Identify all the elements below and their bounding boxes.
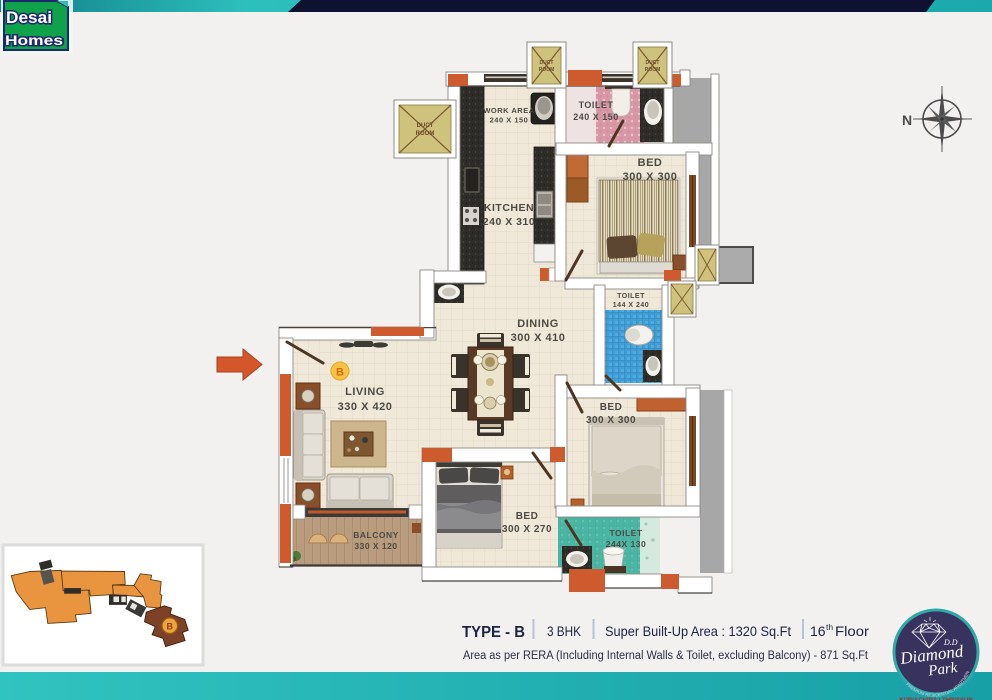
svg-text:Area as per RERA (Including In: Area as per RERA (Including Internal Wal… (463, 650, 869, 662)
svg-text:BED: BED (516, 511, 539, 522)
svg-text:300 X 300: 300 X 300 (586, 415, 636, 426)
svg-text:300 X 270: 300 X 270 (502, 524, 552, 535)
svg-text:WORK AREA: WORK AREA (483, 106, 534, 115)
svg-text:Desai: Desai (6, 8, 52, 27)
svg-text:TYPE - B: TYPE - B (462, 624, 525, 641)
svg-text:ROOM: ROOM (645, 67, 661, 73)
svg-text:240 X 150: 240 X 150 (573, 112, 619, 122)
svg-text:16: 16 (810, 623, 826, 639)
svg-text:300 X 300: 300 X 300 (623, 171, 678, 183)
svg-text:144 X 240: 144 X 240 (613, 302, 649, 309)
svg-text:240 X 310: 240 X 310 (483, 216, 535, 228)
svg-text:ROOM: ROOM (539, 67, 555, 73)
svg-text:DUCT: DUCT (417, 123, 434, 129)
svg-text:244X 130: 244X 130 (606, 539, 646, 549)
svg-text:BED: BED (600, 402, 623, 413)
svg-text:DUCT: DUCT (540, 60, 554, 66)
svg-text:240 X 150: 240 X 150 (490, 116, 529, 125)
svg-text:Floor: Floor (835, 623, 869, 639)
svg-text:N: N (902, 112, 912, 128)
svg-text:DINING: DINING (517, 318, 559, 330)
svg-text:B: B (336, 367, 344, 379)
svg-text:330 X 420: 330 X 420 (338, 401, 393, 413)
svg-text:Super Built-Up Area : 1320 Sq.: Super Built-Up Area : 1320 Sq.Ft (605, 623, 791, 639)
svg-text:BED: BED (638, 157, 663, 169)
svg-text:LIVING: LIVING (345, 386, 385, 398)
svg-text:B: B (167, 622, 174, 632)
svg-text:3 BHK: 3 BHK (547, 623, 582, 639)
svg-text:th: th (826, 622, 833, 632)
svg-text:DUCT: DUCT (646, 60, 660, 66)
svg-text:BALCONY: BALCONY (353, 530, 399, 540)
svg-text:KITCHEN: KITCHEN (484, 202, 534, 214)
svg-text:TOILET: TOILET (617, 293, 645, 300)
svg-text:Homes: Homes (5, 32, 63, 48)
svg-text:330 X 120: 330 X 120 (354, 541, 397, 551)
svg-text:300 X 410: 300 X 410 (511, 332, 566, 344)
svg-text:TOILET: TOILET (609, 528, 642, 538)
svg-text:ROOM: ROOM (416, 131, 435, 137)
svg-text:TOILET: TOILET (579, 100, 614, 110)
